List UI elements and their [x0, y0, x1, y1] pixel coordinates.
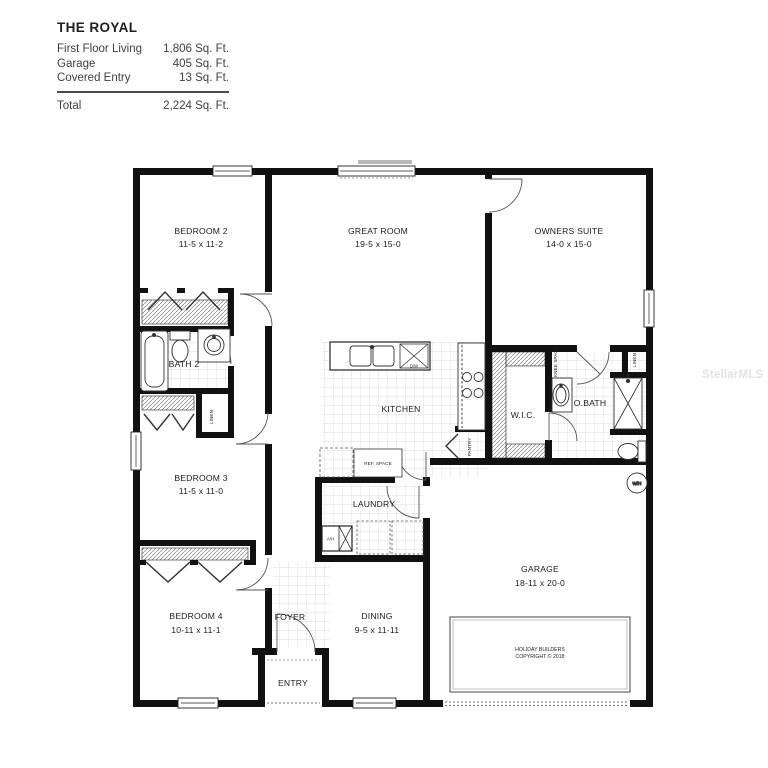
garage-door-panel: HOLIDAY BUILDERS COPYRIGHT © 2018 — [450, 617, 630, 692]
range-icon — [458, 343, 485, 430]
shower-icon — [614, 374, 642, 429]
bathtub-icon — [141, 331, 168, 391]
copyright-line1: HOLIDAY BUILDERS — [515, 647, 565, 653]
vanity-sink-icon — [198, 329, 230, 362]
air-handler-icon: A/H — [322, 526, 352, 551]
room-label-bath2: BATH 2 — [169, 359, 200, 369]
room-label-wic: W.I.C. — [511, 410, 536, 420]
room-label-foyer: FOYER — [275, 612, 306, 622]
kitchen-island: D/W — [330, 342, 430, 370]
room-dims-great-room: 19-5 x 15-0 — [355, 239, 401, 249]
ref-space-label: REF. SPACE — [364, 461, 391, 466]
room-dims-dining: 9-5 x 11-11 — [355, 625, 399, 635]
room-label-owners-suite: OWNERS SUITE — [535, 226, 604, 236]
floor-plan-page: THE ROYAL First Floor Living 1,806 Sq. F… — [0, 0, 768, 768]
water-heater-label: W/H — [632, 481, 641, 486]
mls-watermark: StellarMLS — [702, 369, 763, 381]
room-dims-owners-suite: 14-0 x 15-0 — [546, 239, 592, 249]
dishwasher-label: D/W — [410, 364, 418, 369]
obath-vanity-sink-icon — [552, 378, 572, 412]
floor-plan-svg: D/W REF. SPACE A/H — [0, 0, 768, 768]
room-dims-garage: 18-11 x 20-0 — [515, 578, 565, 588]
linen-bath-label: LINEN — [632, 353, 637, 367]
room-dims-bedroom2: 11-5 x 11-2 — [179, 239, 223, 249]
room-label-dining: DINING — [361, 611, 392, 621]
garage-door-opening — [443, 699, 630, 708]
room-label-laundry: LAUNDRY — [353, 499, 395, 509]
linen-hall-label: LINEN — [209, 410, 214, 424]
room-label-bedroom3: BEDROOM 3 — [174, 473, 227, 483]
room-label-entry: ENTRY — [278, 678, 308, 688]
room-dims-bedroom4: 10-11 x 11-1 — [171, 625, 220, 635]
room-label-garage: GARAGE — [521, 564, 559, 574]
room-label-obath: O.BATH — [574, 398, 607, 408]
air-handler-label: A/H — [327, 537, 334, 542]
room-label-kitchen: KITCHEN — [381, 404, 420, 414]
room-label-bedroom2: BEDROOM 2 — [174, 226, 227, 236]
knee-space-label: KNEE SPACE — [553, 347, 558, 377]
toilet-icon — [170, 331, 190, 362]
room-dims-bedroom3: 11-5 x 11-0 — [179, 486, 223, 496]
copyright-line2: COPYRIGHT © 2018 — [516, 653, 565, 660]
room-label-great-room: GREAT ROOM — [348, 226, 408, 236]
sliding-door — [338, 160, 415, 178]
pantry-label: PANTRY — [467, 438, 472, 457]
room-label-bedroom4: BEDROOM 4 — [169, 611, 222, 621]
